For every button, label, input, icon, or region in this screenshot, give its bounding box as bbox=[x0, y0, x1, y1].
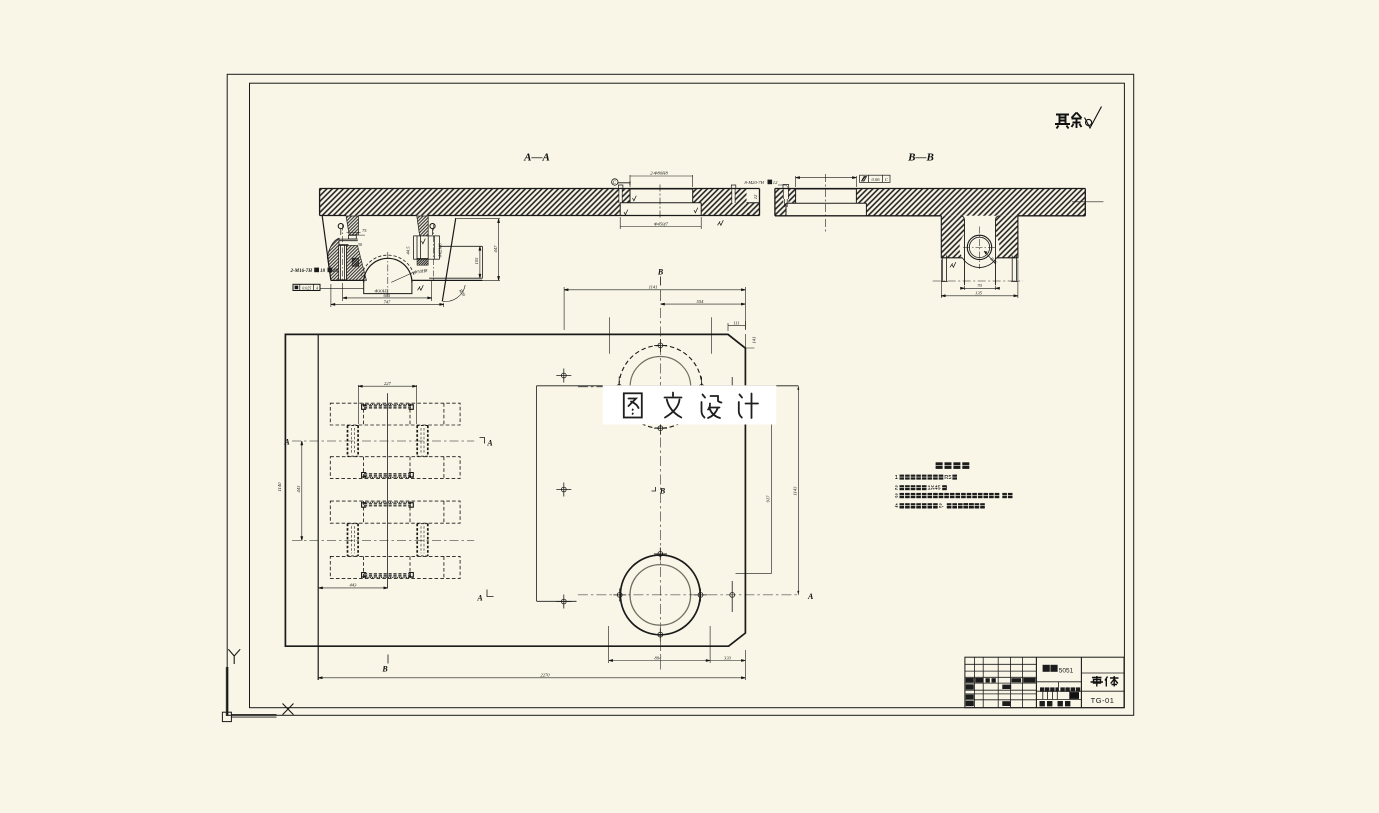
svg-text:TG-01: TG-01 bbox=[1091, 696, 1115, 705]
svg-text:B—B: B—B bbox=[907, 152, 934, 164]
svg-text:605: 605 bbox=[383, 293, 391, 298]
svg-text:A: A bbox=[315, 286, 319, 291]
svg-text:12: 12 bbox=[753, 194, 758, 199]
svg-text:227: 227 bbox=[384, 381, 392, 386]
svg-text:1: 1 bbox=[895, 475, 898, 481]
svg-text:447: 447 bbox=[493, 245, 498, 253]
svg-text:A: A bbox=[476, 594, 483, 603]
svg-text:3: 3 bbox=[895, 493, 898, 499]
svg-text:105: 105 bbox=[474, 257, 479, 265]
svg-text:1X45: 1X45 bbox=[928, 485, 941, 491]
svg-text:30: 30 bbox=[358, 242, 363, 247]
svg-text:2: 2 bbox=[895, 485, 898, 491]
svg-text:2270: 2270 bbox=[540, 673, 550, 678]
svg-text:A: A bbox=[807, 592, 814, 601]
svg-text:1140: 1140 bbox=[277, 482, 282, 492]
svg-text:Φ62M6: Φ62M6 bbox=[437, 243, 442, 258]
svg-text:747: 747 bbox=[383, 299, 391, 304]
svg-text:18: 18 bbox=[320, 269, 326, 274]
svg-text:20: 20 bbox=[332, 269, 339, 274]
svg-text:894: 894 bbox=[655, 655, 663, 660]
svg-text:A: A bbox=[283, 438, 290, 447]
svg-text:917: 917 bbox=[766, 495, 771, 503]
svg-text:B: B bbox=[381, 665, 388, 674]
svg-text:2-Φ80H8: 2-Φ80H8 bbox=[650, 171, 668, 176]
svg-text:135: 135 bbox=[975, 291, 983, 296]
svg-text:1141: 1141 bbox=[649, 285, 658, 290]
svg-text:5051: 5051 bbox=[1059, 667, 1074, 674]
svg-text:B: B bbox=[659, 487, 666, 496]
svg-text:141: 141 bbox=[751, 337, 756, 344]
svg-text:Φ450f7: Φ450f7 bbox=[654, 222, 669, 227]
svg-text:554: 554 bbox=[697, 299, 705, 304]
svg-text:2-M16-7H: 2-M16-7H bbox=[290, 269, 314, 274]
svg-text:12: 12 bbox=[773, 180, 778, 185]
svg-text:8-M20-7H: 8-M20-7H bbox=[745, 180, 765, 185]
svg-text:0.06: 0.06 bbox=[871, 177, 880, 182]
svg-text:443: 443 bbox=[296, 485, 301, 493]
svg-text:0.025: 0.025 bbox=[302, 286, 311, 291]
svg-text:R5: R5 bbox=[944, 475, 951, 481]
svg-text:333: 333 bbox=[724, 655, 732, 660]
svg-text:111: 111 bbox=[733, 320, 739, 325]
svg-text:1143: 1143 bbox=[793, 486, 798, 496]
svg-text:2-: 2- bbox=[939, 504, 944, 510]
svg-text:44.5: 44.5 bbox=[406, 246, 411, 255]
svg-text:70: 70 bbox=[977, 283, 982, 288]
svg-text:B: B bbox=[657, 268, 664, 277]
svg-text:75: 75 bbox=[362, 228, 367, 233]
svg-text:443: 443 bbox=[350, 583, 358, 588]
svg-text:A: A bbox=[486, 439, 493, 448]
svg-text:A—A: A—A bbox=[523, 152, 550, 164]
